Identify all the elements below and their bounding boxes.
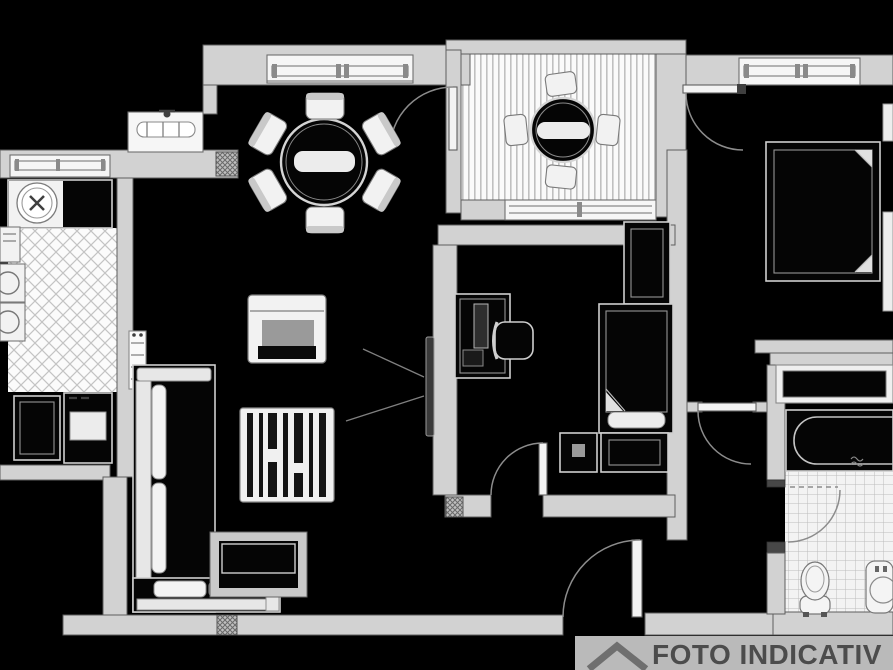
low-closet: [776, 365, 893, 403]
masonry-pier: [446, 497, 463, 517]
wardrobe: [624, 222, 670, 304]
single-bed: [599, 304, 673, 433]
pillow: [608, 412, 665, 428]
bedroom-right-window: [739, 58, 860, 85]
wall-kitchen-bottom: [0, 465, 110, 480]
wall-bedroom-right-bottom: [755, 340, 893, 353]
coffee-table: [210, 532, 307, 597]
radiator: [137, 122, 195, 137]
base-cabinet: [14, 396, 60, 460]
dining-window: [267, 55, 413, 83]
wall-living-left: [103, 477, 127, 617]
wall-bathroom-left-lower: [767, 553, 785, 614]
nightstand: [883, 212, 893, 311]
round-dining-table: [281, 119, 367, 205]
balcony-window: [505, 200, 656, 220]
watermark-banner: FOTO INDICATIV: [575, 636, 893, 670]
kitchen-high-window: [128, 111, 203, 153]
masonry-pier: [217, 615, 237, 635]
wall-bottom-mid: [645, 613, 773, 635]
striped-rug: [240, 408, 334, 502]
sideboard: [248, 295, 326, 363]
round-bistro-table: [531, 98, 595, 162]
wall-bedroom-middle-bottom-b: [543, 495, 675, 517]
keyboard: [463, 350, 483, 366]
wall-block: [767, 542, 785, 553]
nightstand: [601, 433, 668, 472]
washbasin: [866, 561, 893, 613]
wall-bottom-left: [63, 615, 563, 635]
wall-bottom-right: [773, 612, 893, 635]
appliance-cut: [0, 227, 20, 262]
wall-bathroom-top: [770, 353, 893, 365]
kitchen-window: [10, 155, 110, 177]
nightstand: [883, 104, 893, 141]
banner-text: FOTO INDICATIV: [652, 639, 882, 670]
wall-balcony-top: [446, 40, 686, 54]
floorplan-screenshot: FOTO INDICATIV: [0, 0, 893, 670]
radiator-valve: [164, 111, 171, 118]
bathtub: [786, 410, 893, 471]
wall-balcony-sill-stub: [461, 200, 505, 220]
double-bed: [766, 142, 880, 281]
wall-block: [767, 480, 785, 487]
desk-chair: [494, 322, 534, 359]
table-highlight: [294, 151, 355, 172]
washing-machine: [0, 264, 25, 302]
oven-appliance: [0, 303, 25, 341]
wall-bedroom-middle-left: [433, 245, 457, 495]
wall-kitchen-right: [117, 178, 133, 477]
wall-jog: [203, 85, 217, 114]
toilet: [800, 562, 830, 617]
floorplan-drawing: FOTO INDICATIV: [0, 0, 893, 670]
masonry-pier: [216, 152, 238, 176]
monitor: [474, 304, 488, 348]
